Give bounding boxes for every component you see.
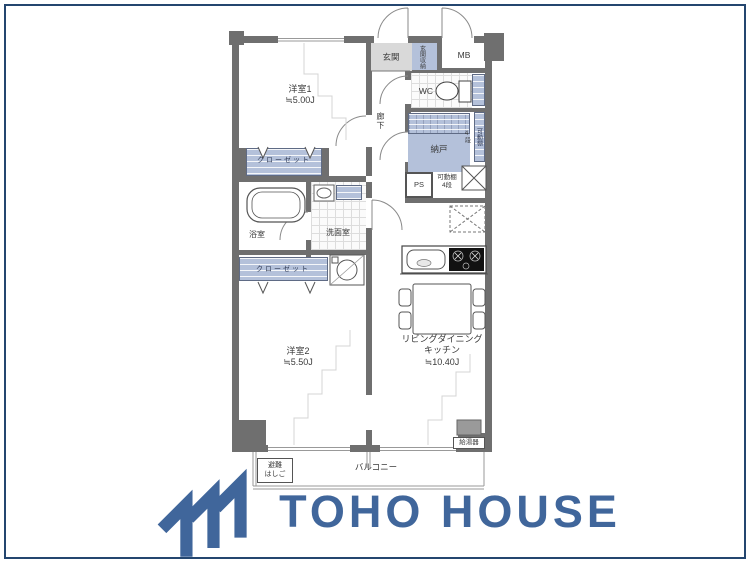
mb-door-arc	[442, 8, 472, 38]
closet-upper-label: クローゼット	[250, 157, 318, 166]
meter-box-label: MB	[452, 50, 476, 61]
floorplan-page: PS	[0, 0, 750, 563]
storage-shelf-top	[408, 113, 470, 134]
window-ldk	[380, 445, 456, 452]
chair-icon	[399, 312, 411, 329]
wall-storage-bottom	[405, 198, 492, 203]
closet1-pillar-left	[239, 148, 246, 176]
dining-table-icon	[399, 284, 485, 334]
stove-icon	[449, 248, 484, 271]
washroom-shelf	[336, 185, 362, 200]
shelf-steps-vertical-label: 4段	[462, 124, 470, 150]
hallway-label: 廊下	[375, 108, 385, 134]
shelf-bottom-line2: 4段	[430, 182, 464, 190]
wall-right	[485, 36, 492, 452]
pillar-top-right	[484, 33, 504, 61]
shelf-bottom-label: 可動棚 4段	[430, 174, 464, 190]
mb-door-opening	[442, 36, 474, 43]
wall-wc-storage	[405, 108, 485, 112]
entrance-label: 玄関	[376, 52, 406, 63]
chair-icon	[473, 312, 485, 329]
room2-label: 洋室2 ≒5.50J	[266, 346, 330, 369]
ldk-name-line2: キッチン	[394, 345, 490, 356]
room2-size: ≒5.50J	[266, 357, 330, 368]
bathroom-label: 浴室	[243, 230, 271, 240]
room1-size: ≒5.00J	[268, 95, 332, 106]
closet1-pillar-right	[322, 148, 329, 176]
wall-divider-a	[366, 182, 372, 198]
washroom-label: 洗面室	[316, 228, 360, 238]
wc-label: WC	[414, 86, 438, 97]
shelf-bottom-line1: 可動棚	[430, 174, 464, 182]
entry-door-arc	[378, 8, 408, 38]
wc-door-arc	[380, 76, 408, 104]
room1-label: 洋室1 ≒5.00J	[268, 84, 332, 107]
ldk-size: ≒10.40J	[394, 357, 490, 368]
washing-machine-icon	[330, 255, 364, 285]
wall-left	[232, 36, 239, 452]
ldk-label: リビングダイニング キッチン ≒10.40J	[394, 334, 490, 368]
plan-lineart	[0, 0, 750, 563]
ladder-line1: 避難	[268, 462, 282, 471]
evacuation-ladder-box: 避難 はしご	[257, 458, 293, 483]
wall-divider-c	[366, 430, 372, 448]
water-heater-label: 給湯器	[459, 439, 479, 447]
storage-door-arc	[380, 132, 408, 160]
window-room2	[268, 445, 350, 452]
wall-washroom-bottom	[239, 250, 366, 255]
page-border	[4, 4, 746, 559]
toho-house-logo-icon	[148, 466, 258, 562]
kitchen-counter	[400, 246, 488, 274]
pipe-space-label: PS	[414, 180, 424, 189]
chair-icon	[473, 289, 485, 306]
closet-lower-label: クローゼット	[246, 266, 320, 275]
room1-name: 洋室1	[268, 84, 332, 95]
shelf-name-vertical-label: 可動棚	[474, 116, 482, 158]
room2-name: 洋室2	[266, 346, 330, 357]
water-heater-label-box: 給湯器	[453, 437, 485, 449]
wc-shelf	[472, 74, 485, 106]
ldk-door-arc	[372, 200, 402, 230]
bath-door-arc	[280, 212, 308, 240]
toho-house-logo-text: TOHO HOUSE	[276, 486, 624, 538]
window-room1	[278, 36, 344, 43]
storage-room-label: 納戸	[424, 144, 454, 155]
balcony-label: バルコニー	[350, 462, 402, 473]
refrigerator-space	[450, 206, 485, 232]
pillar-bottom-left	[232, 420, 266, 447]
entrance-storage-label: 玄関収納	[417, 44, 425, 70]
bathtub-icon	[247, 188, 305, 222]
pipe-space-box: PS	[405, 172, 433, 198]
ldk-name-line1: リビングダイニング	[394, 334, 490, 345]
wall-divider-b	[366, 228, 372, 395]
kitchen-sink-icon	[407, 250, 445, 269]
chair-icon	[399, 289, 411, 306]
entry-door-opening	[374, 36, 408, 43]
ladder-line2: はしご	[265, 471, 286, 480]
room1-door-arc	[336, 116, 366, 146]
wall-room1-hall-b	[366, 147, 372, 176]
pillar-top-left	[229, 31, 244, 45]
wall-mb-left	[437, 40, 442, 70]
